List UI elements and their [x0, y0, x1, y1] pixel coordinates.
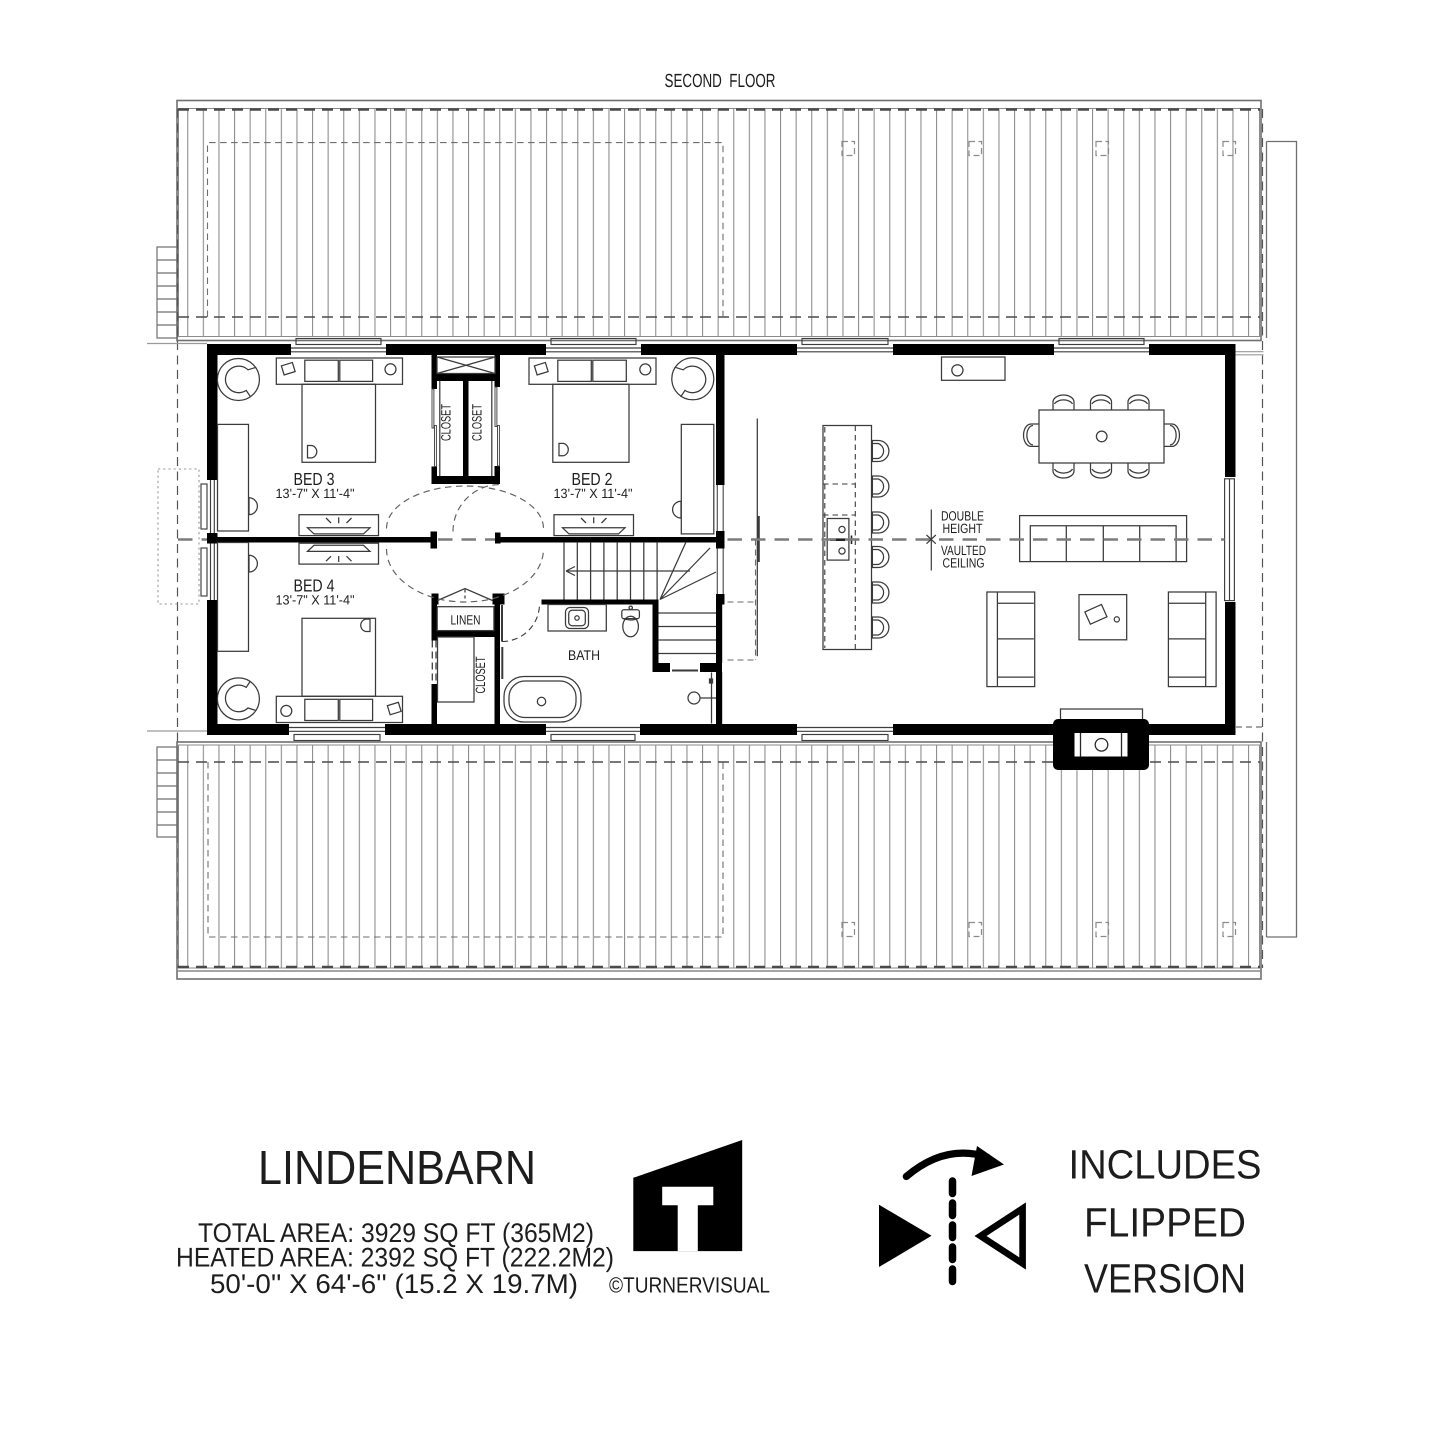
svg-text:LINEN: LINEN — [451, 613, 481, 628]
svg-text:13'-7" X 11'-4": 13'-7" X 11'-4" — [276, 486, 355, 501]
svg-text:CLOSET: CLOSET — [439, 404, 454, 441]
svg-text:HEATED AREA: 2392 SQ FT (222.2: HEATED AREA: 2392 SQ FT (222.2M2) — [176, 1243, 614, 1273]
svg-text:CLOSET: CLOSET — [473, 657, 488, 694]
svg-text:INCLUDES: INCLUDES — [1069, 1142, 1262, 1188]
svg-text:VERSION: VERSION — [1084, 1256, 1246, 1302]
svg-text:HEIGHT: HEIGHT — [943, 521, 983, 536]
svg-text:FLIPPED: FLIPPED — [1084, 1200, 1246, 1246]
svg-text:13'-7" X 11'-4": 13'-7" X 11'-4" — [276, 593, 355, 608]
svg-text:13'-7" X 11'-4": 13'-7" X 11'-4" — [554, 486, 633, 501]
svg-text:SECOND FLOOR: SECOND FLOOR — [665, 71, 776, 92]
svg-text:LINDENBARN: LINDENBARN — [258, 1142, 536, 1195]
svg-text:50'-0'' X 64'-6'' (15.2 X 19.7: 50'-0'' X 64'-6'' (15.2 X 19.7M) — [210, 1269, 578, 1299]
svg-text:©TURNERVISUAL: ©TURNERVISUAL — [609, 1273, 770, 1298]
svg-text:CEILING: CEILING — [943, 556, 985, 571]
svg-text:CLOSET: CLOSET — [470, 404, 485, 441]
svg-text:BATH: BATH — [568, 647, 600, 663]
